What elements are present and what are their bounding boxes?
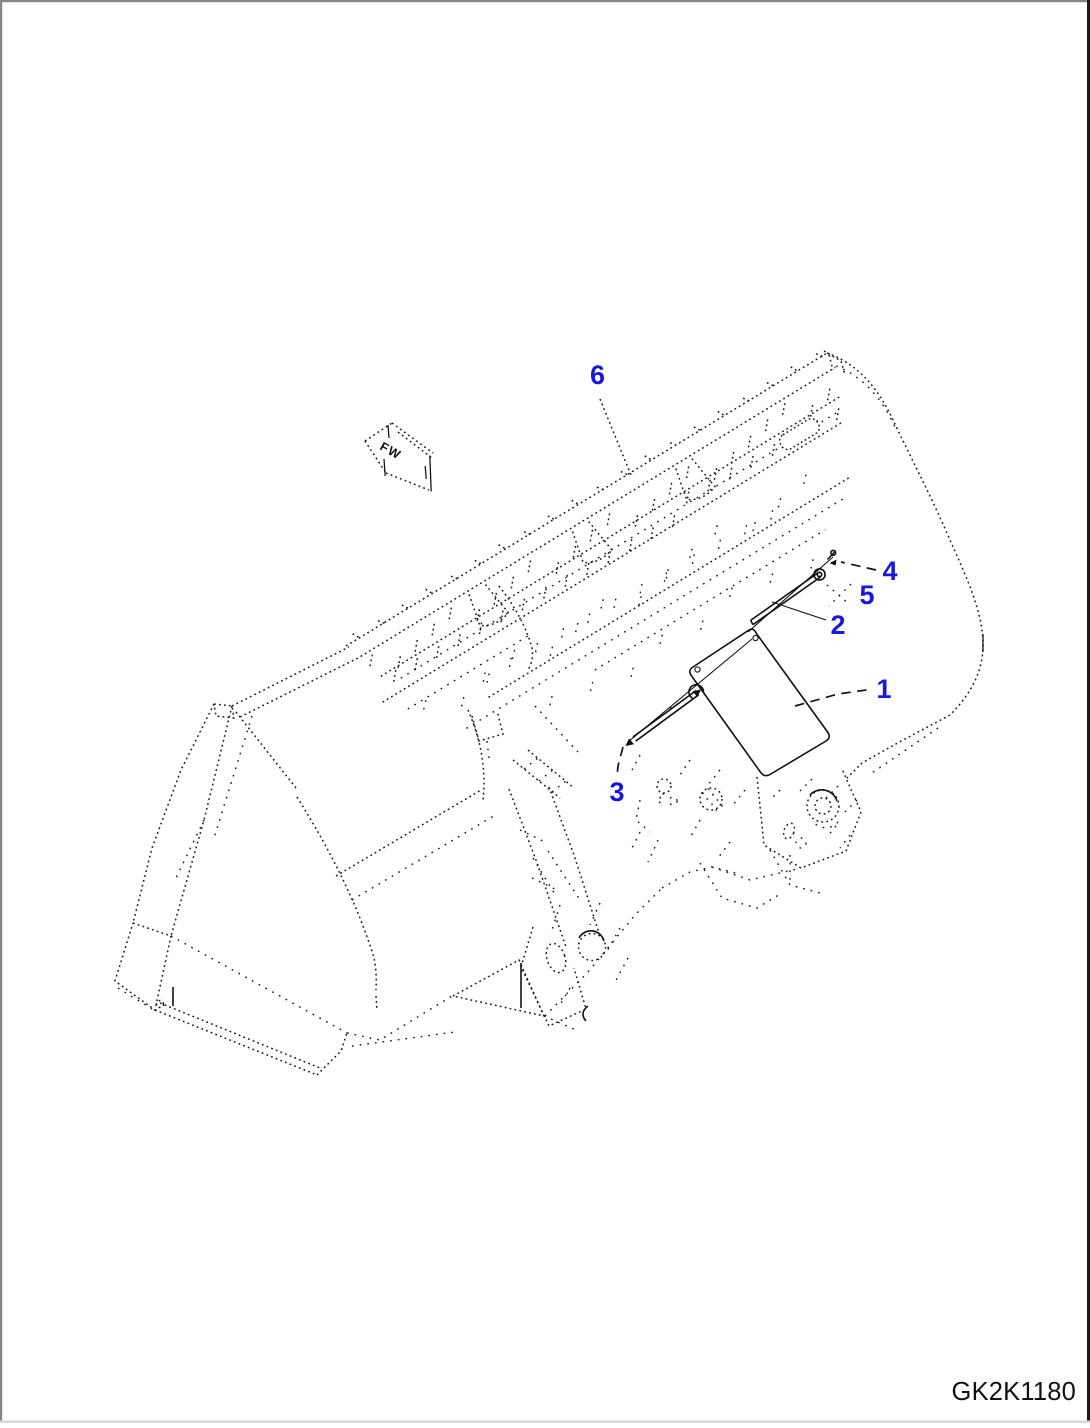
svg-text:6: 6 (590, 360, 605, 390)
svg-text:4: 4 (882, 556, 897, 586)
svg-text:1: 1 (876, 674, 891, 704)
svg-text:3: 3 (609, 777, 624, 807)
svg-text:2: 2 (830, 610, 845, 640)
svg-text:GK2K1180: GK2K1180 (952, 1378, 1076, 1406)
svg-text:5: 5 (859, 580, 874, 610)
